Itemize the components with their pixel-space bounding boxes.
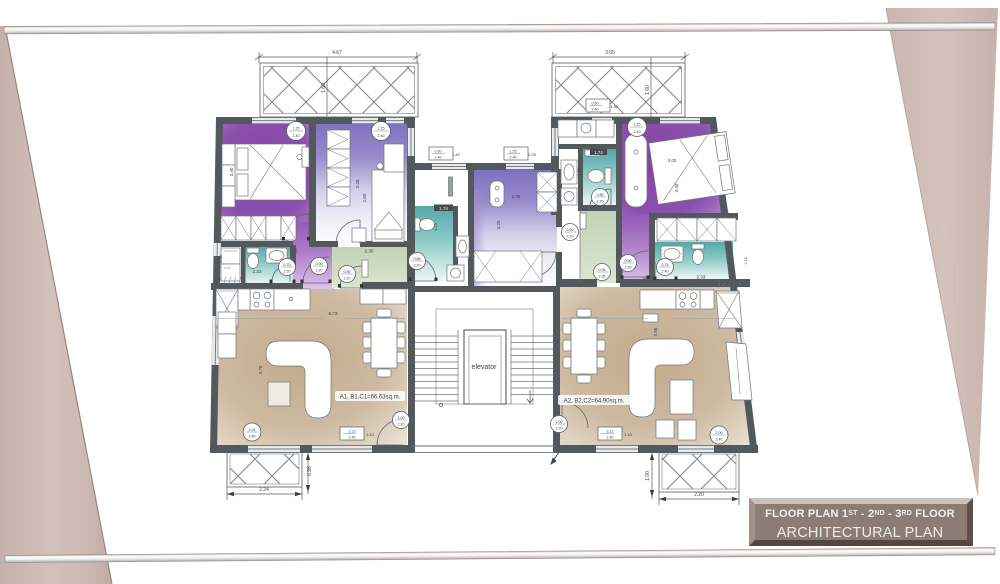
svg-text:0.25: 0.25 — [528, 152, 537, 157]
svg-text:2.15: 2.15 — [434, 223, 438, 230]
svg-text:2.40: 2.40 — [378, 134, 385, 138]
svg-text:2.40: 2.40 — [293, 134, 300, 138]
svg-text:0.75: 0.75 — [662, 263, 669, 267]
svg-text:2.40: 2.40 — [249, 435, 256, 439]
svg-text:2.20: 2.20 — [694, 492, 704, 498]
svg-text:1.00: 1.00 — [398, 416, 405, 420]
svg-text:2.40: 2.40 — [716, 438, 723, 442]
svg-text:ARCHITECTURAL PLAN: ARCHITECTURAL PLAN — [777, 525, 944, 541]
svg-text:1.60: 1.60 — [321, 83, 327, 93]
svg-text:2.20: 2.20 — [567, 235, 574, 239]
svg-text:2.33: 2.33 — [697, 275, 706, 280]
svg-text:A1, B1,C1=66.63sq.m.: A1, B1,C1=66.63sq.m. — [340, 395, 401, 401]
svg-text:1.18: 1.18 — [219, 255, 223, 262]
svg-text:2.50: 2.50 — [577, 168, 581, 175]
svg-text:2.20: 2.20 — [398, 423, 405, 427]
svg-text:0.90: 0.90 — [316, 262, 323, 266]
svg-text:1.74: 1.74 — [439, 206, 448, 211]
svg-text:2.04: 2.04 — [249, 428, 256, 432]
svg-text:elevator: elevator — [472, 364, 498, 371]
svg-text:3.65: 3.65 — [605, 50, 615, 56]
svg-text:2.20: 2.20 — [597, 200, 604, 204]
svg-text:2.45: 2.45 — [512, 194, 521, 199]
svg-text:2.20: 2.20 — [625, 266, 632, 270]
svg-text:0.90: 0.90 — [344, 270, 351, 274]
svg-text:4.65: 4.65 — [653, 327, 658, 336]
svg-text:4.67: 4.67 — [332, 50, 342, 56]
svg-text:FLOOR PLAN 1ST - 2ND - 3RD FL: FLOOR PLAN 1ST - 2ND - 3RD FLOOR — [765, 508, 955, 520]
svg-text:1.25: 1.25 — [293, 127, 300, 131]
svg-text:3.43: 3.43 — [355, 179, 360, 188]
svg-text:3.40: 3.40 — [674, 183, 679, 192]
svg-text:3.00: 3.00 — [668, 158, 677, 163]
svg-text:0.50: 0.50 — [592, 101, 599, 105]
svg-text:4.75: 4.75 — [258, 365, 263, 374]
svg-text:2.40: 2.40 — [607, 436, 614, 440]
svg-text:2.40: 2.40 — [510, 156, 517, 160]
svg-text:1.15: 1.15 — [378, 127, 385, 131]
svg-text:3.20: 3.20 — [496, 220, 501, 229]
svg-text:2.20: 2.20 — [284, 270, 291, 274]
svg-text:0.90: 0.90 — [567, 228, 574, 232]
svg-text:0.96: 0.96 — [599, 268, 606, 272]
svg-text:2.20: 2.20 — [414, 264, 421, 268]
svg-text:0.85: 0.85 — [597, 193, 604, 197]
svg-text:2.00: 2.00 — [716, 431, 723, 435]
svg-text:0.90: 0.90 — [625, 259, 632, 263]
svg-text:1.10: 1.10 — [366, 432, 375, 437]
svg-text:3.40: 3.40 — [229, 167, 234, 176]
svg-text:2.40: 2.40 — [349, 436, 356, 440]
svg-text:2.12: 2.12 — [349, 429, 356, 433]
svg-text:1.40: 1.40 — [452, 152, 461, 157]
svg-text:1.19: 1.19 — [744, 257, 748, 264]
svg-text:5.73: 5.73 — [329, 311, 338, 316]
svg-text:1.10: 1.10 — [624, 432, 633, 437]
svg-text:2.20: 2.20 — [556, 427, 563, 431]
svg-text:0.75: 0.75 — [284, 263, 291, 267]
svg-text:2.24: 2.24 — [259, 487, 269, 493]
svg-text:1.25: 1.25 — [634, 123, 641, 127]
svg-text:2.12: 2.12 — [607, 429, 614, 433]
svg-text:2.50: 2.50 — [362, 193, 367, 202]
svg-text:A2, B2,C2=64.90sq.m.: A2, B2,C2=64.90sq.m. — [564, 399, 625, 405]
svg-text:2.40: 2.40 — [634, 130, 641, 134]
svg-text:1.00: 1.00 — [556, 420, 563, 424]
svg-text:2.23: 2.23 — [253, 269, 262, 274]
svg-text:0.50: 0.50 — [435, 149, 442, 153]
svg-text:0.98: 0.98 — [307, 466, 313, 476]
svg-text:1.74: 1.74 — [594, 150, 603, 155]
svg-text:2.40: 2.40 — [662, 270, 669, 274]
svg-text:0.85: 0.85 — [414, 257, 421, 261]
svg-text:1.40: 1.40 — [610, 104, 619, 109]
svg-text:2.20: 2.20 — [316, 269, 323, 273]
svg-text:2.30: 2.30 — [365, 249, 374, 254]
svg-text:2.20: 2.20 — [344, 277, 351, 281]
svg-text:2.40: 2.40 — [435, 156, 442, 160]
svg-text:1.00: 1.00 — [645, 471, 651, 481]
svg-text:1.25: 1.25 — [510, 149, 517, 153]
svg-text:1.60: 1.60 — [645, 85, 651, 95]
svg-text:2.35: 2.35 — [599, 275, 606, 279]
svg-text:2.40: 2.40 — [592, 108, 599, 112]
